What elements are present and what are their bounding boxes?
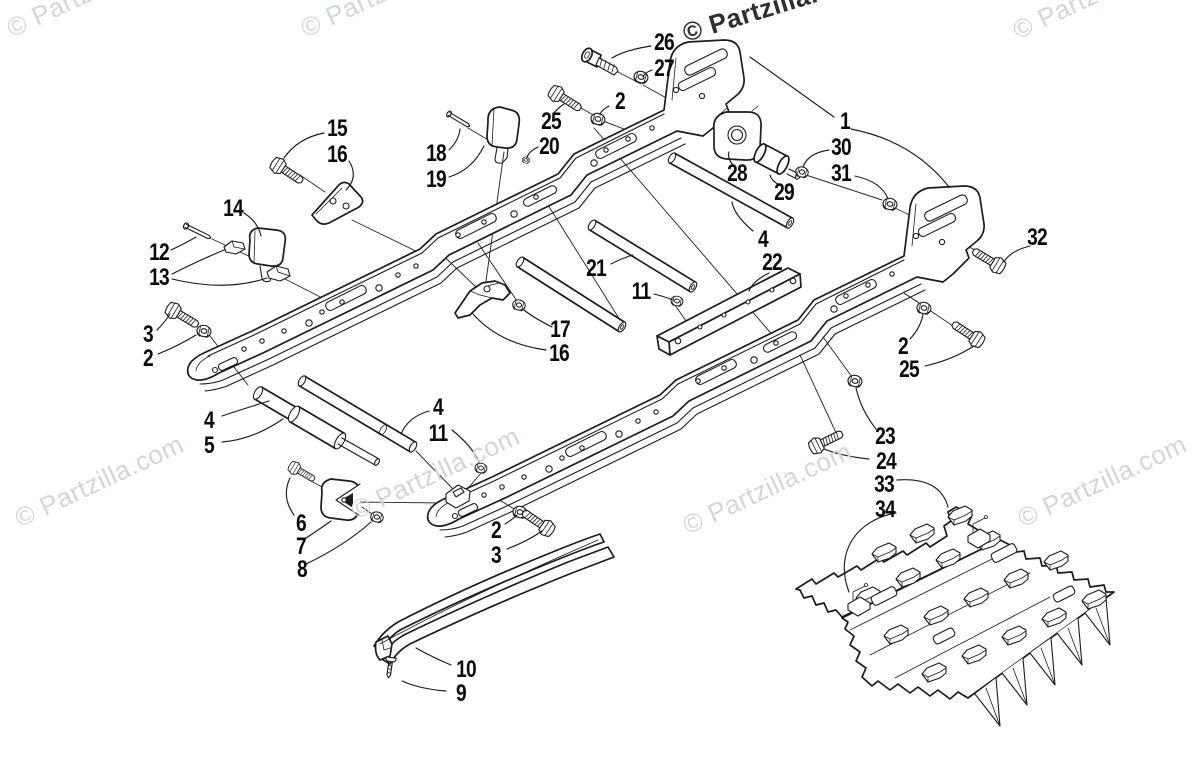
callout-11: 11 <box>632 280 651 304</box>
callout-25: 25 <box>899 358 919 382</box>
callout-2: 2 <box>143 347 153 371</box>
callout-31: 31 <box>831 162 851 186</box>
callout-30: 30 <box>831 136 851 160</box>
callout-20: 20 <box>539 135 559 159</box>
callout-3: 3 <box>491 544 501 568</box>
callout-4: 4 <box>204 409 214 433</box>
callout-5: 5 <box>204 434 214 458</box>
callout-18: 18 <box>426 142 446 166</box>
callout-2: 2 <box>615 90 625 114</box>
callout-3: 3 <box>143 323 153 347</box>
callout-16: 16 <box>549 342 569 366</box>
callout-27: 27 <box>654 57 674 81</box>
callout-4: 4 <box>433 396 443 420</box>
callout-2: 2 <box>491 519 501 543</box>
callout-25: 25 <box>541 110 561 134</box>
callout-16: 16 <box>327 143 347 167</box>
callout-28: 28 <box>727 162 747 186</box>
callout-33: 33 <box>874 473 894 497</box>
callout-19: 19 <box>426 168 446 192</box>
callout-21: 21 <box>586 257 606 281</box>
callout-22: 22 <box>762 251 782 275</box>
callout-34: 34 <box>875 498 895 522</box>
callout-17: 17 <box>550 318 570 342</box>
callout-label-layer: 1222233444567891011111213141516161718192… <box>0 0 1200 771</box>
callout-11: 11 <box>429 422 448 446</box>
callout-26: 26 <box>654 31 674 55</box>
callout-8: 8 <box>297 558 307 582</box>
callout-1: 1 <box>840 110 850 134</box>
callout-29: 29 <box>774 181 794 205</box>
callout-12: 12 <box>149 241 169 265</box>
callout-15: 15 <box>327 117 347 141</box>
callout-9: 9 <box>456 682 466 706</box>
callout-14: 14 <box>223 197 243 221</box>
callout-13: 13 <box>149 266 169 290</box>
callout-32: 32 <box>1027 226 1047 250</box>
parts-diagram-canvas: © Partzilla.com© Partzilla.com© Partzill… <box>0 0 1200 771</box>
callout-23: 23 <box>875 425 895 449</box>
callout-10: 10 <box>456 658 476 682</box>
